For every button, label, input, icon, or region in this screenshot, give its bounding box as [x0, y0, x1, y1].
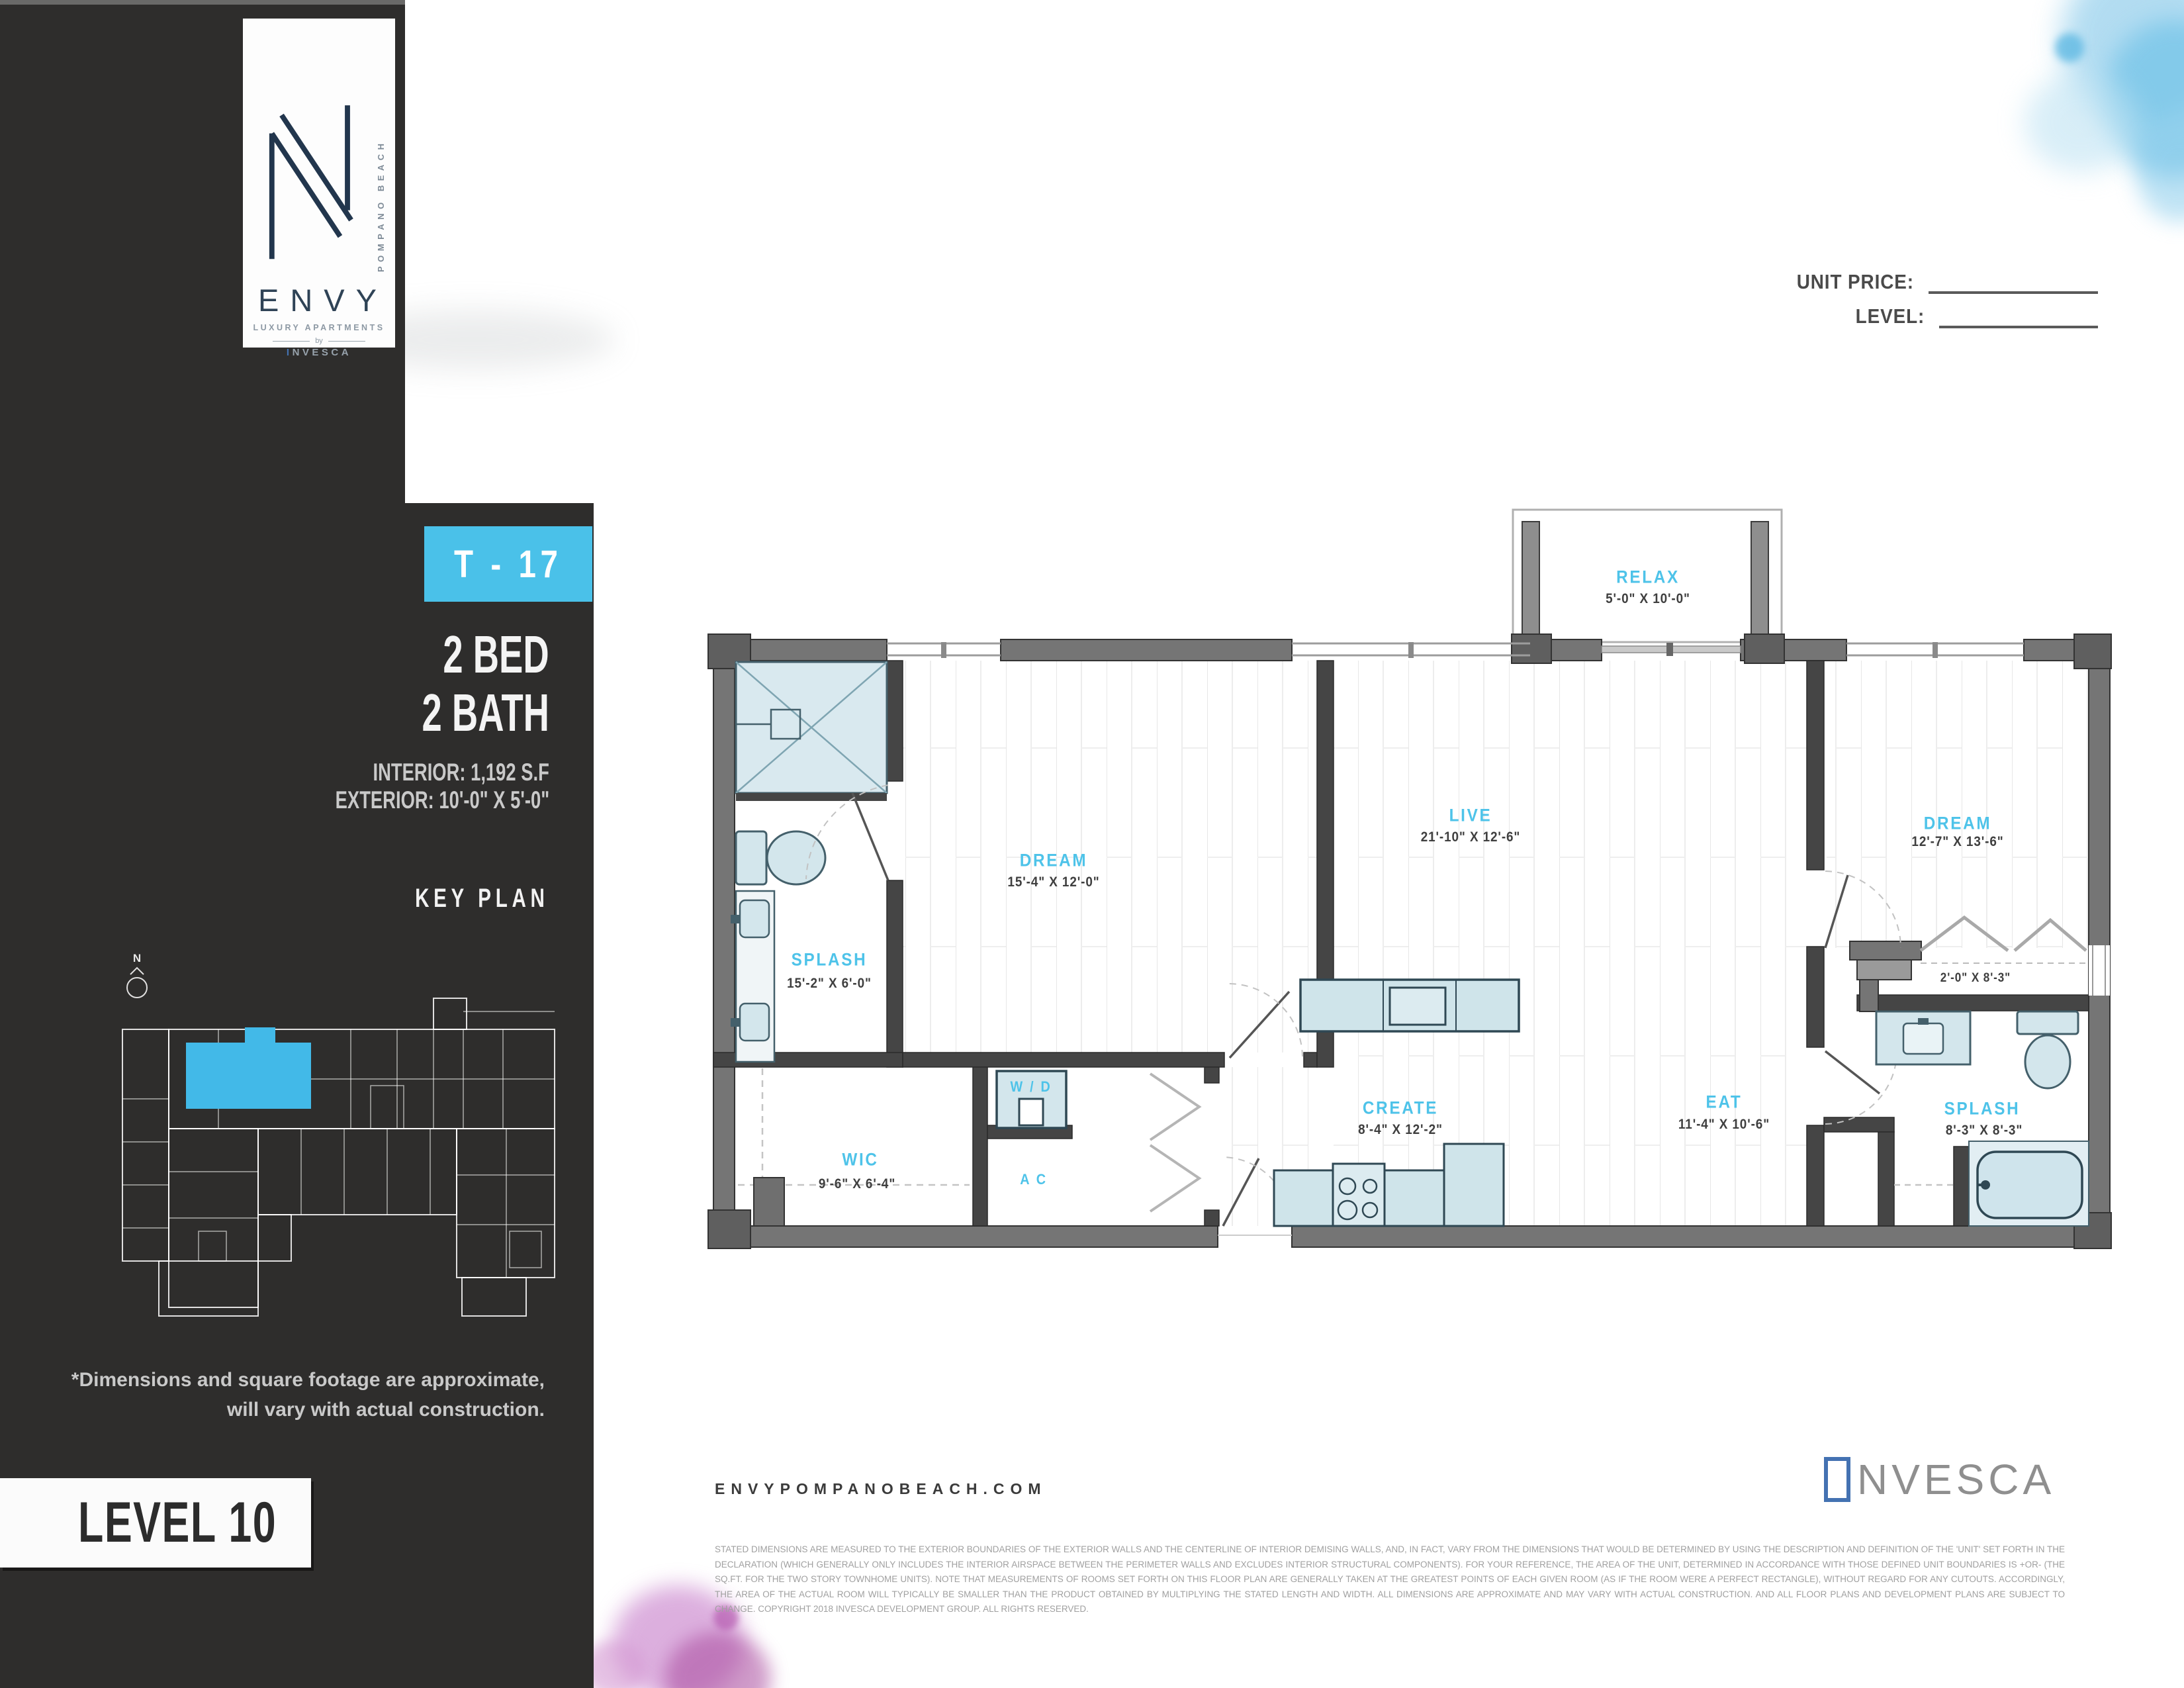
room-label-ac: A C	[1020, 1171, 1047, 1188]
brand-tagline: LUXURY APARTMENTS	[243, 323, 395, 332]
level-field-label: LEVEL:	[1855, 305, 1925, 328]
bedroom2-floor	[1827, 661, 2089, 948]
room-dims-create: 8'-4" X 12'-2"	[1358, 1122, 1443, 1138]
watercolor-splash-top-right	[2025, 73, 2138, 172]
bed-count: 2 BED	[393, 626, 549, 684]
unit-price-blank-line	[1929, 267, 2098, 294]
bath-count: 2 BATH	[362, 684, 549, 742]
unit-price-row: UNIT PRICE:	[1747, 267, 2098, 294]
legal-disclaimer: STATED DIMENSIONS ARE MEASURED TO THE EX…	[715, 1542, 2065, 1617]
interior-area: INTERIOR: 1,192 S.F	[311, 757, 549, 788]
developer-name-small: INVESCA	[243, 347, 395, 358]
watercolor-splash-top-right	[2105, 20, 2184, 179]
room-dims-live: 21'-10" X 12'-6"	[1421, 829, 1521, 845]
kitchen-counter	[1274, 1144, 1504, 1226]
by-text: by	[315, 337, 323, 345]
watercolor-splash-bottom-left	[665, 1632, 771, 1688]
door-leaf	[1825, 1051, 1880, 1094]
bedroom1-floor	[903, 661, 1317, 1053]
vanity-sink	[731, 891, 774, 1062]
unit-price-label: UNIT PRICE:	[1797, 270, 1914, 294]
entry-door-leaf	[1223, 1158, 1259, 1226]
floor-plan-flyer: POMPANO BEACH ENVY LUXURY APARTMENTS by …	[0, 0, 2184, 1688]
rule-line	[273, 341, 310, 342]
brand-name: ENVY	[243, 282, 395, 318]
room-label-dream-1: DREAM	[1020, 851, 1088, 871]
rule-line	[328, 341, 365, 342]
shower	[736, 662, 887, 801]
room-dims-splash-1: 15'-2" X 6'-0"	[787, 976, 872, 992]
room-dims-dream-2: 12'-7" X 13'-6"	[1911, 834, 2003, 850]
room-label-wd: W / D	[1011, 1078, 1052, 1096]
watercolor-splash-top-right	[2055, 33, 2084, 62]
watercolor-splash-top-right	[2062, 0, 2184, 126]
brand-by-row: by	[243, 337, 395, 345]
page-top-edge	[0, 0, 405, 5]
door-leaf	[852, 793, 888, 880]
disclaimer-line-2: will vary with actual construction.	[71, 1395, 545, 1425]
key-plan-title: KEY PLAN	[368, 884, 549, 914]
living-floor	[1334, 661, 1807, 1226]
level-label: LEVEL 10	[78, 1490, 277, 1556]
exterior-walls	[713, 639, 2110, 1248]
windows	[887, 643, 2024, 655]
room-label-splash-1: SPLASH	[792, 950, 868, 970]
room-dims-wic: 9'-6" X 6'-4"	[819, 1176, 895, 1192]
room-label-wic: WIC	[842, 1150, 878, 1170]
door-leaf	[1825, 875, 1848, 948]
sliding-door	[1602, 646, 1741, 653]
room-label-relax: RELAX	[1616, 567, 1680, 588]
toilet	[736, 831, 825, 884]
toilet-2	[2017, 1011, 2078, 1088]
room-label-eat: EAT	[1706, 1092, 1743, 1113]
bifold-door-icon	[1150, 1074, 1199, 1211]
unit-number-badge: T - 17	[424, 526, 592, 602]
level-field-row: LEVEL:	[1747, 302, 2098, 328]
room-label-splash-2: SPLASH	[1944, 1099, 2021, 1119]
watercolor-splash-top-right	[2136, 122, 2184, 222]
hall-floor	[1219, 1067, 1317, 1226]
level-blank-line	[1939, 302, 2098, 328]
invesca-logo-text: NVESCA	[1857, 1455, 2055, 1504]
invesca-logo: I NVESCA	[1824, 1455, 2055, 1504]
website-url: ENVYPOMPANOBEACH.COM	[715, 1480, 1047, 1498]
room-dims-eat: 11'-4" X 10'-6"	[1678, 1117, 1770, 1133]
invesca-i-mark-icon: I	[1824, 1457, 1850, 1502]
room-label-dream-2: DREAM	[1924, 814, 1992, 834]
closet-dims: 2'-0" X 8'-3"	[1940, 971, 2011, 986]
kitchen-island	[1300, 980, 1519, 1031]
room-dims-splash-2: 8'-3" X 8'-3"	[1946, 1123, 2023, 1139]
exterior-dims: EXTERIOR: 10'-0" X 5'-0"	[260, 784, 549, 816]
level-box: LEVEL 10	[0, 1478, 311, 1568]
sidebar-disclaimer: *Dimensions and square footage are appro…	[71, 1365, 545, 1425]
unit-number: T - 17	[454, 542, 563, 586]
room-dims-relax: 5'-0" X 10'-0"	[1606, 591, 1690, 607]
interior-walls	[713, 661, 2089, 1226]
stove	[1333, 1164, 1385, 1226]
fridge	[1444, 1144, 1504, 1226]
brand-logo-card: POMPANO BEACH ENVY LUXURY APARTMENTS by …	[243, 19, 395, 348]
door-leaf	[1230, 992, 1289, 1058]
compass-north-label: N	[133, 952, 141, 965]
envy-n-monogram-icon	[255, 103, 371, 272]
closet-hanger-icon	[1921, 917, 2086, 951]
room-label-create: CREATE	[1363, 1098, 1438, 1119]
logo-vertical-text: POMPANO BEACH	[376, 97, 386, 272]
disclaimer-line-1: *Dimensions and square footage are appro…	[71, 1365, 545, 1395]
room-dims-dream-1: 15'-4" X 12'-0"	[1007, 874, 1099, 890]
room-label-live: LIVE	[1449, 806, 1492, 826]
vanity-sink-2	[1876, 1011, 1970, 1064]
bathtub	[1969, 1141, 2089, 1226]
